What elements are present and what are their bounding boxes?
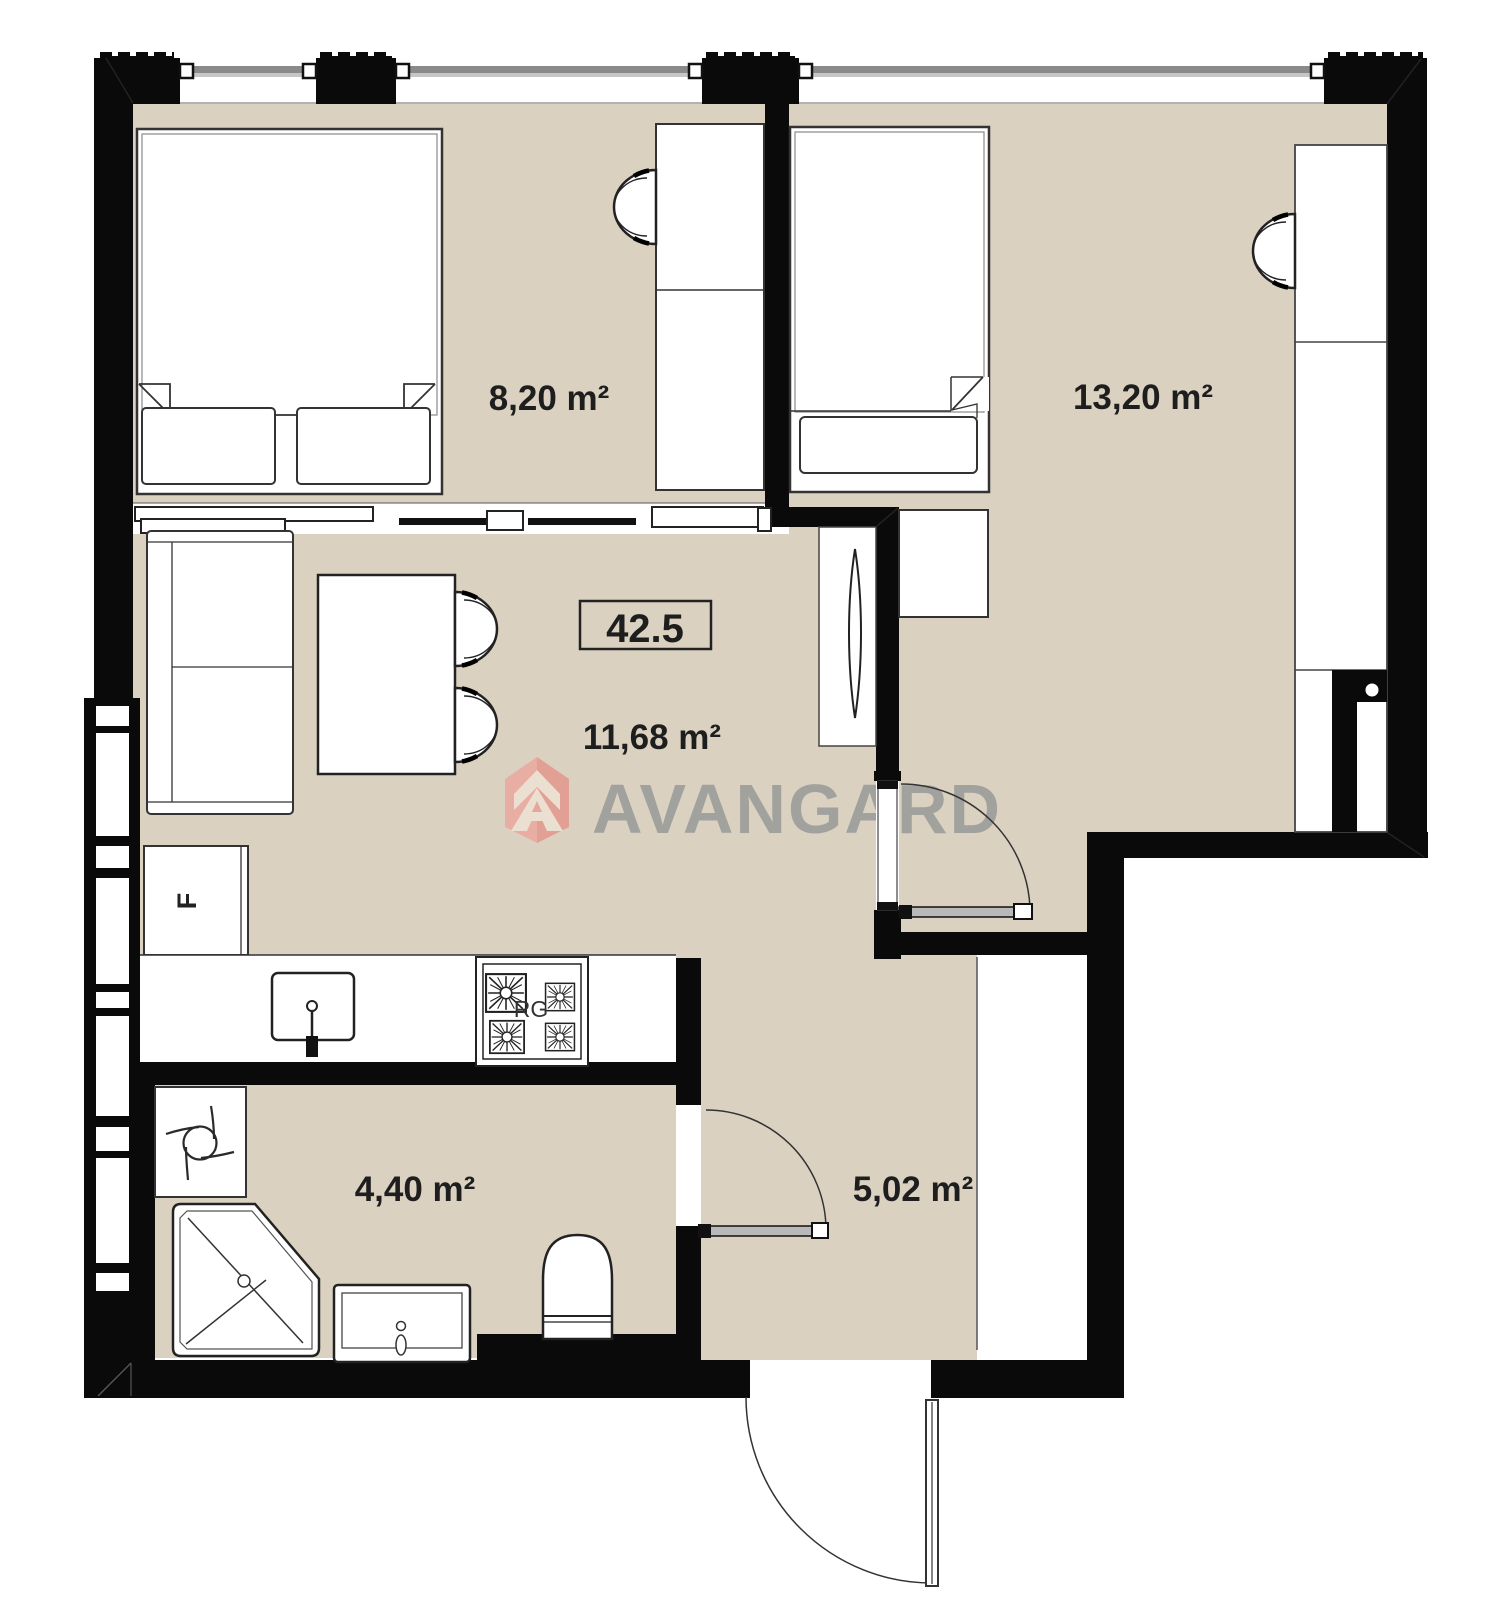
svg-text:13,20 m²: 13,20 m²: [1073, 378, 1213, 417]
svg-text:4,40 m²: 4,40 m²: [355, 1170, 476, 1209]
svg-text:42.5: 42.5: [606, 607, 684, 651]
svg-text:11,68 m²: 11,68 m²: [583, 718, 721, 757]
svg-text:AVANGARD: AVANGARD: [592, 770, 1002, 848]
svg-text:5,02 m²: 5,02 m²: [853, 1170, 974, 1209]
svg-text:RG: RG: [514, 996, 549, 1022]
svg-text:8,20 m²: 8,20 m²: [489, 379, 610, 418]
svg-text:F: F: [172, 893, 202, 910]
